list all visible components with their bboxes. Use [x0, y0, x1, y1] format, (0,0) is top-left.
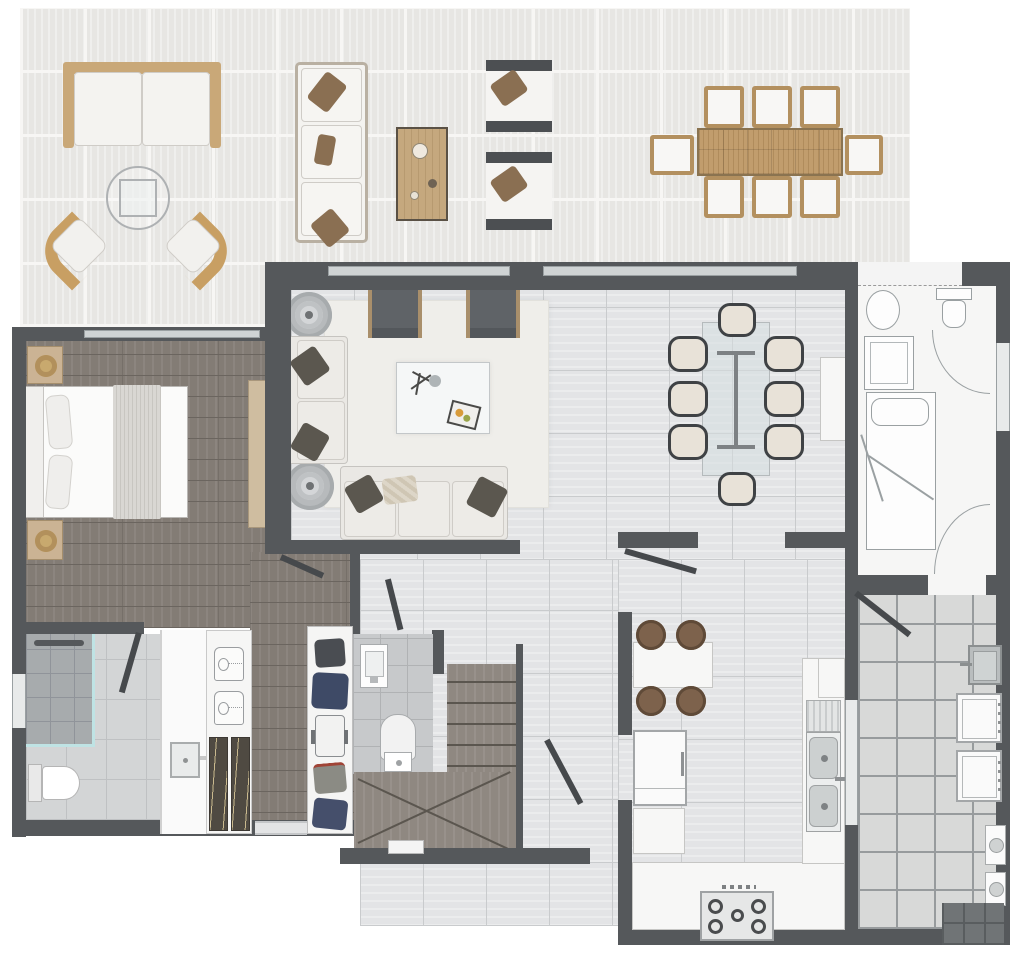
wicker-chair-left — [36, 213, 114, 297]
outdoor-dining-chair — [800, 176, 840, 218]
floor-plan — [0, 0, 1024, 958]
terrace-coffee-table — [396, 127, 448, 221]
table-base-cap — [717, 445, 755, 449]
table-lamp-finial — [306, 482, 314, 490]
heater-unit — [985, 825, 1006, 865]
coffee-table — [396, 362, 490, 434]
folded-item-navy2 — [312, 797, 349, 830]
window-bedroom — [84, 330, 260, 338]
bed-throw-blanket — [113, 385, 161, 519]
sofa-three-seat — [340, 466, 508, 540]
lamp — [35, 355, 57, 377]
folded-shirt — [214, 647, 244, 681]
suitcase — [315, 715, 345, 757]
laundry-sink-basin — [973, 651, 997, 681]
vanity-sink — [170, 742, 200, 778]
dining-chair — [764, 424, 804, 460]
window-bathroom-left — [12, 674, 26, 728]
powder-basin-inner — [365, 651, 384, 677]
sink-drainboard — [806, 700, 841, 732]
sideboard — [820, 357, 846, 441]
shirt-buttons — [228, 663, 242, 664]
refrigerator — [633, 730, 687, 806]
decor-vase — [429, 375, 441, 387]
decor-branch — [415, 373, 421, 395]
dining-chair — [668, 381, 708, 417]
stair-handrail-wall — [516, 644, 523, 850]
shower-floor — [26, 634, 94, 746]
closet-hall — [307, 626, 353, 834]
threshold-hall — [255, 821, 307, 835]
sink-faucet — [835, 777, 845, 781]
kitchen-upper-cabinet — [818, 658, 845, 698]
suitcase-handle — [311, 730, 315, 744]
stair-winders — [354, 772, 518, 850]
folded-shirt — [214, 691, 244, 725]
outdoor-dining-chair — [800, 86, 840, 128]
fridge-door-line — [635, 788, 685, 789]
window-kitchen-pass — [845, 700, 858, 825]
dryer — [956, 750, 1002, 802]
washer-hinges — [998, 703, 1001, 733]
toilet-master-tank — [28, 764, 42, 802]
lumbar-pillow — [489, 165, 528, 204]
window-dining-top — [543, 266, 797, 276]
outdoor-dining-chair — [704, 86, 744, 128]
wall-bathroom-top — [12, 622, 144, 634]
hanging-clothes — [231, 737, 250, 831]
outdoor-dining-table — [697, 128, 843, 176]
dining-chair — [668, 336, 708, 372]
outdoor-dining-chair — [704, 176, 744, 218]
outdoor-dining-chair-end — [650, 135, 694, 175]
wall-kitchen-left-upper — [618, 612, 632, 735]
service-toilet-tank — [936, 288, 972, 300]
sink-basin — [809, 737, 838, 779]
hob-burner-center — [731, 909, 744, 922]
outdoor-sofa-horizontal — [63, 62, 221, 148]
dryer-hinges — [998, 761, 1001, 791]
service-bed-pillow — [871, 398, 929, 426]
dining-chair — [668, 424, 708, 460]
vanity-counter — [160, 630, 206, 834]
bed-pillow — [45, 394, 74, 450]
bed-headboard — [25, 387, 44, 517]
table-base-cap — [717, 351, 755, 355]
folded-item-navy — [311, 672, 349, 710]
heater-dial — [989, 882, 1004, 897]
dining-chair-head — [718, 472, 756, 506]
laundry-faucet — [960, 663, 972, 666]
hob-burner — [751, 899, 766, 914]
wicker-chair-right — [158, 213, 236, 297]
tray-fruit — [463, 414, 471, 422]
suitcase-handle — [344, 730, 348, 744]
heater-unit — [985, 872, 1006, 906]
wall-stub-dining-b — [785, 532, 847, 548]
wall-service-left — [845, 262, 858, 595]
kitchen-base-cabinet — [633, 808, 685, 854]
lamp — [35, 530, 57, 552]
service-bed — [866, 392, 936, 550]
shirt-collar — [218, 658, 229, 671]
wall-kitchen-left-lower — [618, 800, 632, 945]
wall-living-bottom — [265, 540, 520, 554]
laundry-sink — [968, 645, 1002, 685]
wall-living-left — [265, 262, 291, 554]
hob-burner — [708, 919, 723, 934]
powder-basin-tap — [370, 677, 378, 683]
decor-tray — [447, 400, 482, 431]
outdoor-sofa-cushion — [74, 72, 142, 146]
terrace-table-glass-top — [119, 179, 157, 217]
outdoor-armchair-top — [486, 60, 552, 132]
side-table-top — [286, 292, 332, 338]
breakfast-stool — [636, 620, 666, 650]
powder-toilet-base — [384, 752, 412, 772]
shirt-collar — [218, 702, 229, 715]
shower-glass-right — [92, 634, 95, 746]
nightstand-bottom — [27, 520, 63, 560]
shower-cabin-inner — [870, 342, 908, 384]
wall-stub-dining-a — [618, 532, 698, 548]
hob-burner — [751, 919, 766, 934]
gas-hob — [700, 891, 774, 941]
outdoor-sofa-cushion — [142, 72, 210, 146]
winder-line — [358, 771, 511, 844]
outdoor-dining-chair — [752, 176, 792, 218]
shower-glass-bottom — [26, 744, 95, 747]
folded-item-olive — [313, 762, 347, 795]
washer-door — [962, 699, 997, 739]
stair-straight-flight — [447, 664, 517, 788]
outdoor-armchair-bottom — [486, 152, 552, 230]
sink-basin — [809, 785, 838, 827]
table-decor-dot — [410, 191, 419, 200]
sink-drain-dot — [183, 758, 188, 763]
threshold-stair — [388, 840, 424, 854]
breakfast-stool — [676, 686, 706, 716]
shirt-buttons — [228, 707, 242, 708]
shower-drain — [34, 640, 84, 646]
sink-drain-dot — [821, 803, 828, 810]
lumbar-pillow — [489, 69, 528, 108]
powder-basin — [360, 644, 388, 688]
service-door-gap — [928, 575, 986, 595]
dryer-door — [962, 756, 997, 798]
outdoor-sofa-vertical — [295, 62, 368, 243]
wall-outer-left — [12, 327, 26, 837]
hob-burner — [708, 899, 723, 914]
heater-dial — [989, 838, 1004, 853]
toilet-master-bowl — [42, 766, 80, 800]
dining-chair-head — [718, 303, 756, 337]
dining-chair — [764, 381, 804, 417]
table-decor-candle — [412, 143, 428, 159]
patio-dark-step — [942, 903, 1004, 945]
wall-hall-divider — [350, 546, 360, 634]
patterned-pillow — [381, 475, 418, 505]
hanging-clothes — [209, 737, 228, 831]
table-lamp-finial — [305, 311, 313, 319]
nightstand-top — [27, 346, 63, 384]
winder-line — [358, 778, 511, 851]
dining-chair — [764, 336, 804, 372]
toilet-flush-dot — [396, 760, 402, 766]
kitchen-sink-double — [806, 732, 841, 832]
outdoor-dining-chair-end — [845, 135, 883, 175]
outdoor-sofa-arm-left — [63, 66, 74, 148]
washer — [956, 693, 1002, 743]
bed-double — [24, 386, 188, 518]
table-base-column — [734, 353, 738, 447]
outdoor-sofa-arm-right — [210, 66, 221, 148]
fridge-handle — [681, 752, 684, 776]
bed-pillow — [45, 454, 74, 510]
table-decor-dot — [428, 179, 437, 188]
hob-knobs — [722, 885, 756, 889]
window-living-top — [328, 266, 510, 276]
service-toilet-bowl — [942, 300, 966, 328]
service-basin — [866, 290, 900, 330]
service-top-band — [858, 262, 962, 286]
breakfast-stool — [636, 686, 666, 716]
sofa-two-seat — [282, 336, 348, 464]
dining-table-glass — [702, 322, 770, 476]
service-shower-cabin — [864, 336, 914, 390]
folded-item-grey — [314, 638, 346, 668]
wall-stair-bottom — [340, 848, 590, 864]
side-table-bottom — [286, 462, 334, 510]
outdoor-dining-chair — [752, 86, 792, 128]
wall-powder-stair — [432, 630, 444, 674]
window-service-right — [996, 343, 1010, 431]
sink-drain-dot — [821, 755, 828, 762]
closet-master — [206, 630, 252, 834]
breakfast-stool — [676, 620, 706, 650]
